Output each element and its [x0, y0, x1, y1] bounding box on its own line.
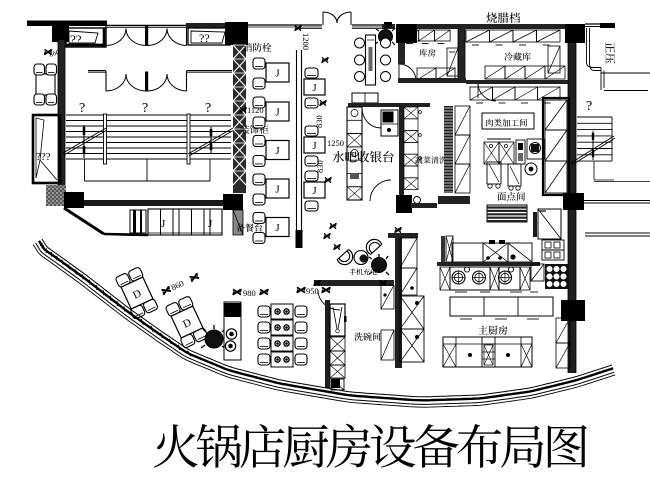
svg-text:J: J: [275, 67, 280, 79]
svg-text:980: 980: [243, 288, 256, 298]
svg-text:??: ??: [199, 31, 210, 45]
svg-text:??: ??: [70, 32, 82, 47]
svg-text:?: ?: [205, 101, 211, 116]
svg-text:J: J: [312, 141, 316, 152]
svg-text:?: ?: [142, 101, 148, 116]
svg-text:J: J: [275, 183, 280, 195]
svg-text:J: J: [312, 186, 316, 197]
svg-text:J: J: [161, 218, 166, 230]
svg-text:1200: 1200: [301, 33, 311, 50]
svg-text:?: ?: [586, 99, 592, 114]
svg-text:J: J: [275, 222, 280, 234]
svg-text:950: 950: [306, 286, 319, 296]
svg-text:?: ?: [79, 101, 85, 116]
svg-text:1250: 1250: [327, 138, 344, 148]
svg-text:J: J: [275, 106, 280, 118]
svg-text:J: J: [208, 218, 213, 230]
svg-text:J: J: [312, 83, 316, 94]
svg-text:J: J: [275, 145, 280, 157]
svg-text:???: ???: [36, 151, 51, 163]
svg-text:860: 860: [170, 278, 186, 292]
svg-text:830: 830: [315, 160, 325, 173]
svg-text:830: 830: [314, 115, 324, 128]
